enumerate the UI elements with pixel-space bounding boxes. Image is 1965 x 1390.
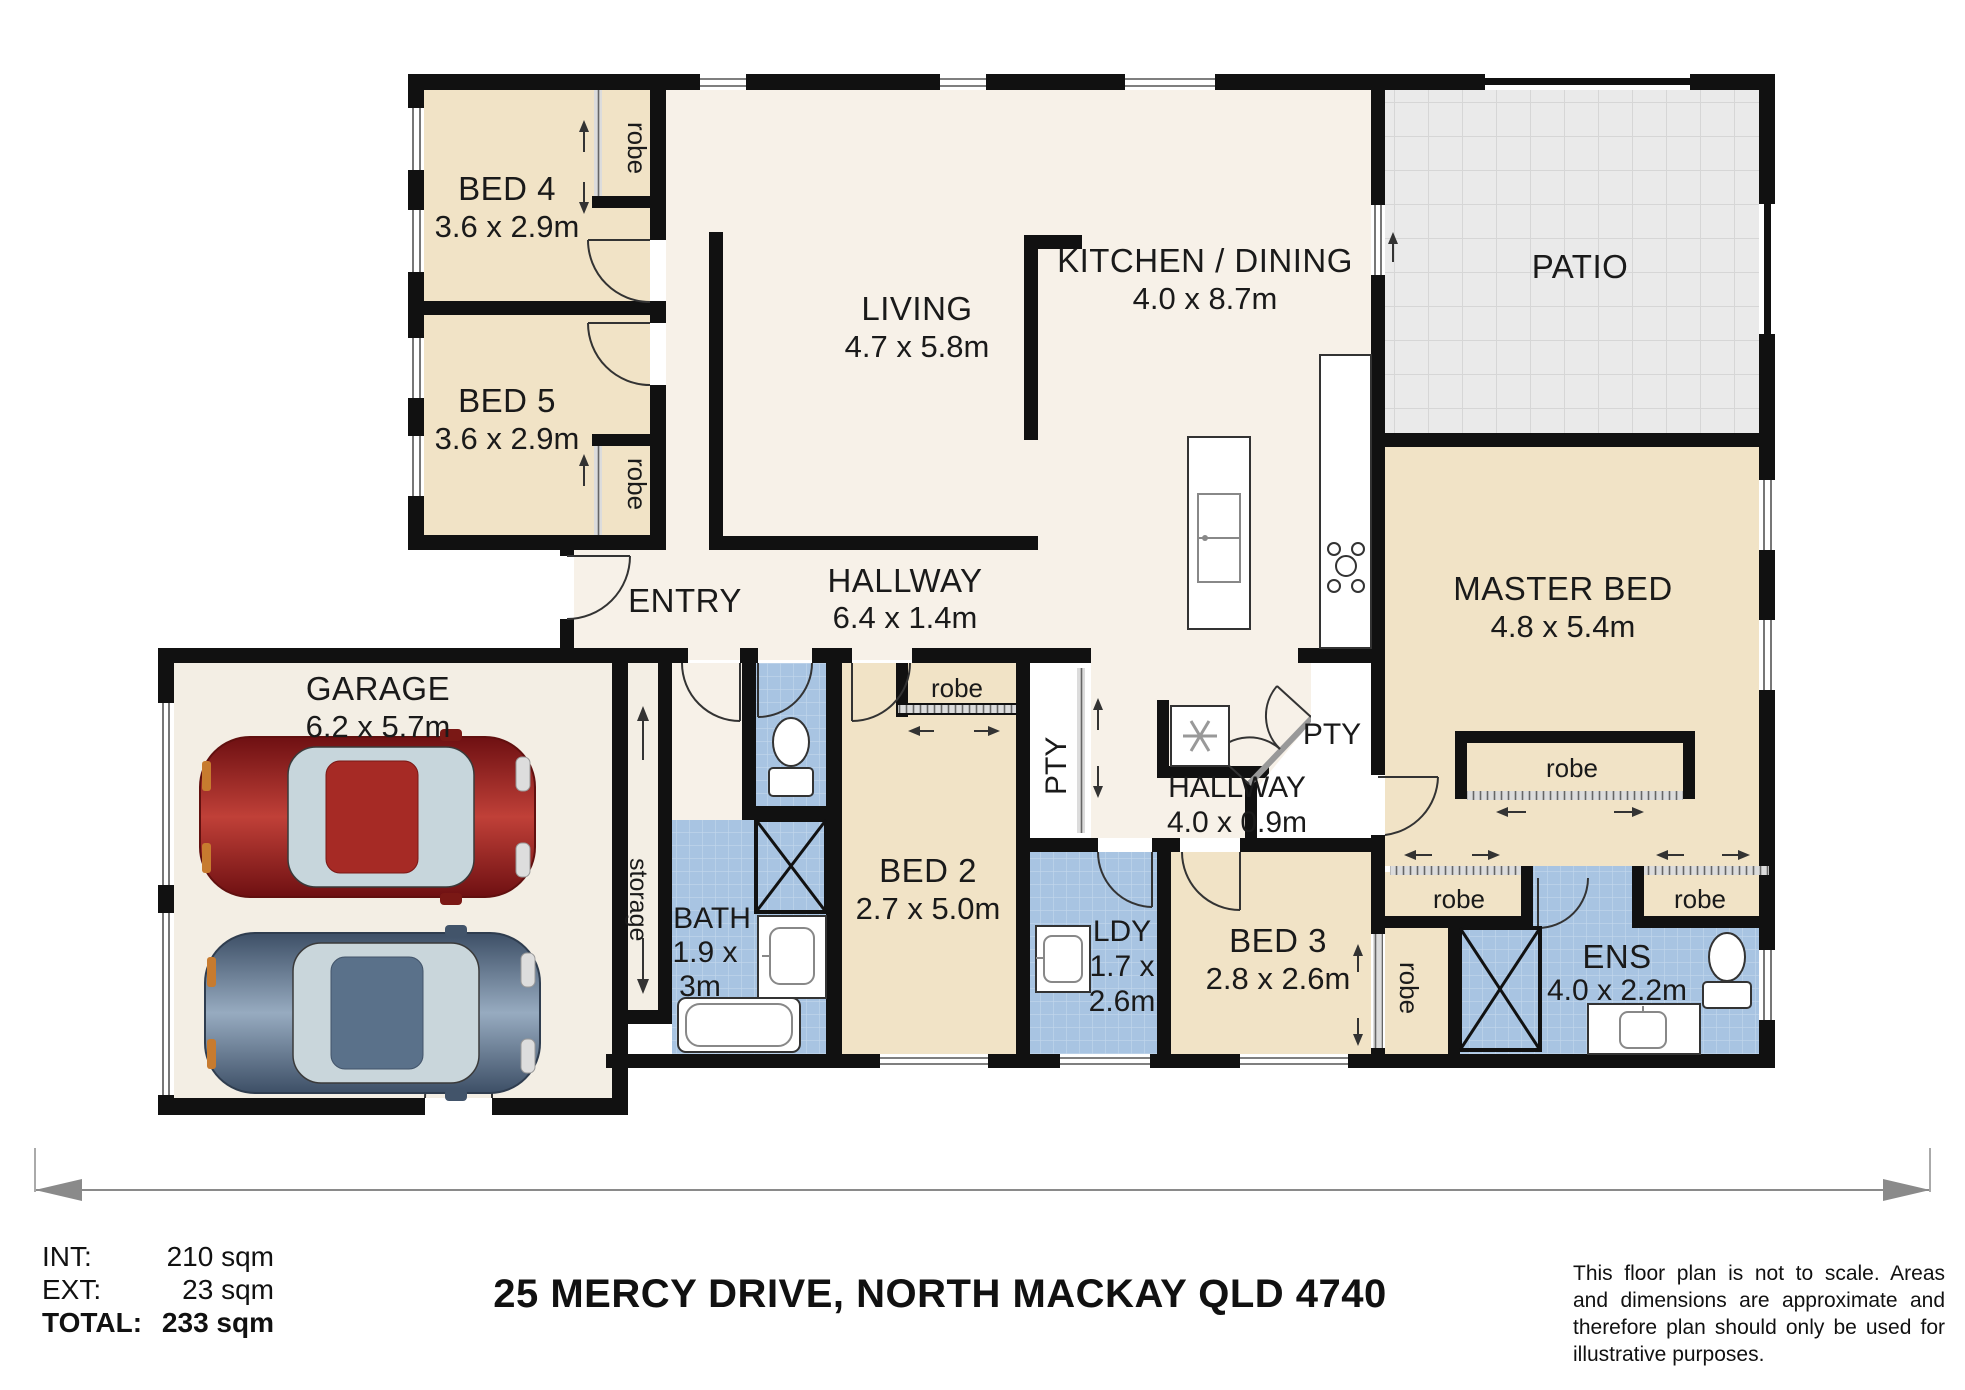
rect-shape	[1759, 447, 1775, 480]
rect-shape	[658, 663, 672, 1010]
rect-shape	[940, 74, 986, 90]
rect-shape	[1024, 235, 1038, 440]
sliding-door-icon	[1373, 934, 1383, 1048]
rect-shape	[812, 648, 852, 663]
rect-shape	[158, 1098, 628, 1115]
rect-shape	[521, 953, 535, 987]
circle-shape	[1202, 535, 1208, 541]
laundry-tub-icon	[1036, 926, 1090, 992]
kitchen-dims: 4.0 x 8.7m	[1133, 281, 1278, 316]
window-icon	[408, 338, 424, 398]
sliding-door-icon	[594, 446, 602, 535]
scale-bar	[35, 1148, 1930, 1201]
rect-shape	[202, 843, 211, 873]
rect-shape	[1371, 838, 1385, 934]
rect-shape	[1759, 620, 1775, 690]
rect-shape	[826, 663, 842, 1068]
rect-shape	[440, 893, 462, 905]
rect-shape	[1371, 433, 1775, 447]
car-blue-icon	[205, 925, 540, 1101]
rect-shape	[408, 398, 424, 436]
rect-shape	[742, 663, 756, 806]
area-summary: INT: 210 sqm EXT: 23 sqm TOTAL: 233 sqm	[42, 1240, 274, 1339]
rect-shape	[700, 74, 746, 90]
ext-label: EXT:	[42, 1273, 101, 1306]
window-icon	[408, 108, 424, 170]
bed4-dims: 3.6 x 2.9m	[435, 209, 580, 244]
rect-shape	[1157, 852, 1171, 1068]
rect-shape	[521, 1039, 535, 1073]
rect-shape	[158, 703, 174, 885]
total-label: TOTAL:	[42, 1306, 142, 1339]
rect-shape	[1215, 74, 1385, 90]
rect-shape	[1152, 838, 1180, 852]
ellipse-shape	[773, 718, 809, 766]
rect-shape	[1016, 663, 1030, 1068]
window-icon	[940, 74, 986, 90]
area-row-int: INT: 210 sqm	[42, 1240, 274, 1273]
rect-shape	[592, 196, 650, 208]
sliding-door-icon	[594, 90, 602, 196]
ensuite-passage-floor	[1533, 866, 1632, 928]
pantry-corner-label: PTY	[1303, 718, 1361, 751]
sliding-door-icon	[1077, 668, 1085, 833]
rect-shape	[1371, 205, 1385, 275]
ensuite-dims: 4.0 x 2.2m	[1547, 974, 1687, 1007]
rect-shape	[988, 1054, 1060, 1068]
rect-shape	[740, 648, 758, 663]
window-icon	[1759, 950, 1775, 1020]
bed3-dims: 2.8 x 2.6m	[1206, 961, 1351, 996]
rect-shape	[1759, 950, 1775, 1020]
rect-shape	[880, 1054, 988, 1068]
entry-label: ENTRY	[628, 582, 742, 619]
rect-shape	[1521, 866, 1533, 928]
rect-shape	[592, 434, 666, 446]
robe-right-label: robe	[1674, 884, 1726, 914]
rect-shape	[1150, 1054, 1240, 1068]
sliding-door-icon	[1371, 205, 1385, 275]
circle-shape	[1336, 556, 1356, 576]
rect-shape	[746, 74, 940, 90]
bed2-label: BED 2	[879, 852, 977, 889]
rect-shape	[606, 1054, 880, 1068]
scale-arrow-left	[35, 1179, 82, 1201]
window-icon	[880, 1054, 988, 1068]
disclaimer-text: This floor plan is not to scale. Areas a…	[1573, 1260, 1945, 1368]
rect-shape	[1016, 648, 1091, 663]
circle-shape	[1352, 543, 1364, 555]
rect-shape	[1371, 90, 1385, 205]
rect-shape	[158, 913, 174, 1095]
rect-shape	[709, 232, 723, 550]
fridge-icon	[1171, 706, 1229, 766]
rect-shape	[1030, 838, 1098, 852]
kitchen-bench	[1320, 355, 1371, 648]
sliding-door-icon	[1467, 791, 1683, 800]
ensuite-label: ENS	[1582, 938, 1651, 975]
circle-shape	[1352, 580, 1364, 592]
rect-shape	[1759, 550, 1775, 620]
rect-shape	[1371, 275, 1385, 433]
floor-plan-page: BED 4 3.6 x 2.9m robe BED 5 3.6 x 2.9m r…	[0, 0, 1965, 1390]
back-door-icon	[1060, 1054, 1150, 1068]
window-icon	[1759, 480, 1775, 550]
sliding-door-icon	[898, 705, 1016, 713]
rect-shape	[620, 1010, 672, 1024]
bed2-dims: 2.7 x 5.0m	[856, 891, 1001, 926]
robe-strip-label: robe	[1394, 962, 1424, 1014]
rect-shape	[986, 74, 1125, 90]
robe-left-label: robe	[1433, 884, 1485, 914]
master-dims: 4.8 x 5.4m	[1491, 609, 1636, 644]
rect-shape	[1759, 74, 1775, 204]
rect-shape	[678, 998, 800, 1052]
rect-shape	[516, 843, 530, 877]
hallway-rear-label: HALLWAY	[1168, 771, 1306, 804]
laundry-dims-2: 2.6m	[1089, 985, 1156, 1018]
rect-shape	[1759, 690, 1775, 950]
rect-shape	[202, 761, 211, 791]
bed2-robe-label: robe	[931, 673, 983, 703]
int-value: 210 sqm	[167, 1240, 274, 1273]
kitchen-label: KITCHEN / DINING	[1057, 242, 1353, 279]
bath-dims-1: 1.9 x	[672, 936, 737, 969]
bath-label: BATH	[673, 902, 751, 935]
sliding-door-icon	[1390, 866, 1521, 875]
garage-door-icon	[158, 703, 174, 885]
pantry-strip-label: PTY	[1040, 737, 1073, 795]
rect-shape	[424, 301, 666, 315]
rect-shape	[408, 74, 424, 108]
hallway-main-label: HALLWAY	[827, 562, 982, 599]
rect-shape	[1060, 1054, 1150, 1068]
floor-plan-drawing: BED 4 3.6 x 2.9m robe BED 5 3.6 x 2.9m r…	[0, 0, 1965, 1390]
living-kitchen-floor	[666, 90, 1371, 660]
master-label: MASTER BED	[1453, 570, 1673, 607]
bed5-robe-label: robe	[622, 458, 652, 510]
circle-shape	[1328, 543, 1340, 555]
rect-shape	[408, 108, 424, 170]
rect-shape	[445, 925, 467, 937]
ext-value: 23 sqm	[182, 1273, 274, 1306]
rect-shape	[723, 536, 1038, 550]
master-bed-floor	[1385, 447, 1759, 866]
garage-door-icon	[158, 913, 174, 1095]
window-icon	[1125, 74, 1215, 90]
living-label: LIVING	[861, 290, 972, 327]
rect-shape	[158, 885, 174, 913]
property-address: 25 MERCY DRIVE, NORTH MACKAY QLD 4740	[340, 1272, 1540, 1317]
total-value: 233 sqm	[162, 1306, 274, 1339]
rect-shape	[331, 957, 423, 1069]
scale-arrow-right	[1883, 1179, 1930, 1201]
rect-shape	[1240, 838, 1371, 852]
rect-shape	[158, 648, 174, 703]
storage-label: storage	[624, 858, 652, 941]
garage-label: GARAGE	[306, 670, 450, 707]
rect-shape	[445, 1089, 467, 1101]
rect-shape	[1348, 1054, 1775, 1068]
rect-shape	[1455, 731, 1695, 743]
rect-shape	[912, 648, 1016, 663]
rect-shape	[1485, 78, 1690, 85]
bed4-robe-label: robe	[622, 122, 652, 174]
rect-shape	[1125, 74, 1215, 90]
window-icon	[1759, 620, 1775, 690]
rect-shape	[1240, 1054, 1348, 1068]
car-red-icon	[200, 729, 535, 905]
sliding-door-icon	[1644, 866, 1769, 875]
area-row-total: TOTAL: 233 sqm	[42, 1306, 274, 1339]
rect-shape	[1683, 743, 1695, 799]
bed4-label: BED 4	[458, 170, 556, 207]
laundry-label: LDY	[1093, 915, 1151, 948]
rect-shape	[742, 806, 840, 820]
patio-label: PATIO	[1532, 248, 1629, 285]
sink-icon	[758, 916, 826, 998]
rect-shape	[326, 761, 418, 873]
rect-shape	[1759, 480, 1775, 550]
rect-shape	[408, 338, 424, 398]
rect-shape	[1371, 835, 1385, 838]
living-dims: 4.7 x 5.8m	[845, 329, 990, 364]
bed5-label: BED 5	[458, 382, 556, 419]
window-icon	[408, 210, 424, 272]
hallway-rear-dims: 4.0 x 0.9m	[1167, 806, 1307, 839]
rect-shape	[1632, 916, 1771, 928]
rect-shape	[1764, 204, 1771, 334]
bed3-label: BED 3	[1229, 922, 1327, 959]
rect-shape	[408, 436, 424, 496]
window-icon	[1240, 1054, 1348, 1068]
ellipse-shape	[1709, 933, 1745, 981]
rect-shape	[628, 648, 688, 663]
bath-vestibule-floor	[672, 663, 742, 820]
bed5-dims: 3.6 x 2.9m	[435, 421, 580, 456]
rect-shape	[1371, 447, 1385, 775]
hallway-main-dims: 6.4 x 1.4m	[833, 600, 978, 635]
rect-shape	[1385, 74, 1485, 90]
rect-shape	[769, 768, 813, 796]
circle-shape	[1328, 580, 1340, 592]
window-icon	[700, 74, 746, 90]
rect-shape	[408, 210, 424, 272]
rect-shape	[1455, 743, 1467, 799]
rect-shape	[408, 170, 424, 210]
int-label: INT:	[42, 1240, 92, 1273]
rect-shape	[516, 757, 530, 791]
rect-shape	[408, 272, 424, 338]
sink-icon	[1588, 1004, 1700, 1054]
rect-shape	[1298, 648, 1371, 663]
bath-dims-2: 3m	[679, 970, 721, 1003]
laundry-dims-1: 1.7 x	[1089, 950, 1154, 983]
rect-shape	[158, 648, 628, 663]
rect-shape	[408, 535, 666, 550]
area-row-ext: EXT: 23 sqm	[42, 1273, 274, 1306]
bathtub-icon	[678, 998, 800, 1052]
rect-shape	[207, 957, 216, 987]
rect-shape	[207, 1039, 216, 1069]
rect-shape	[1703, 982, 1751, 1008]
window-icon	[408, 436, 424, 496]
master-robe-label: robe	[1546, 753, 1598, 783]
garage-dims: 6.2 x 5.7m	[306, 709, 451, 744]
rect-shape	[1759, 334, 1775, 447]
